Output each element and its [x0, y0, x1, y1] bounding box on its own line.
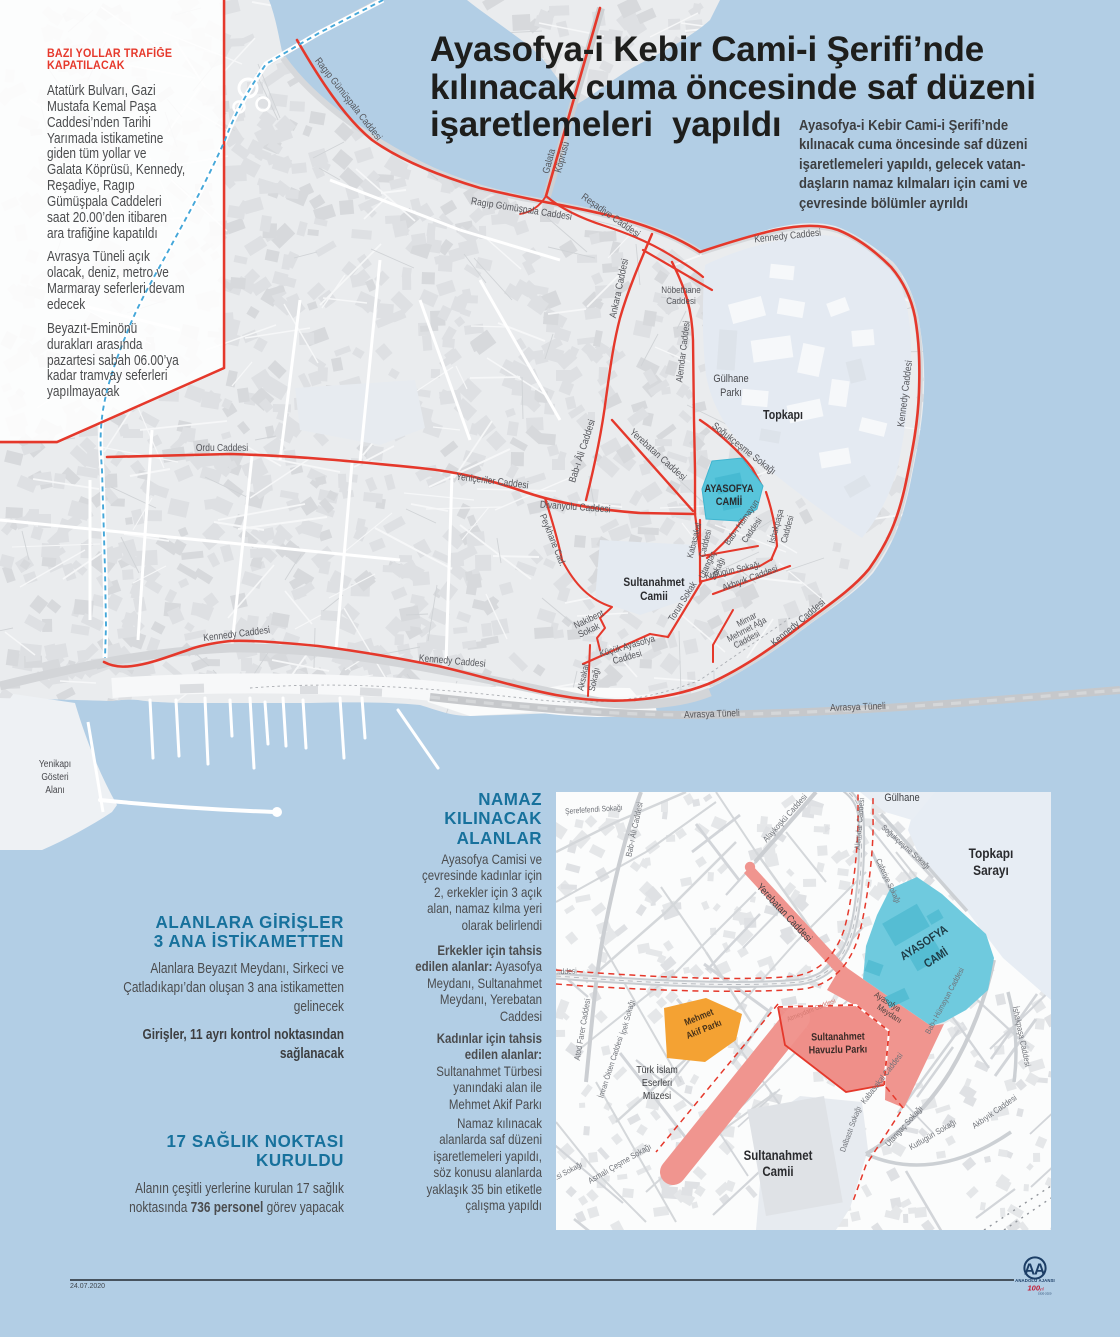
svg-text:Havuzlu Parkı: Havuzlu Parkı: [809, 1044, 868, 1057]
svg-text:Sultanahmet: Sultanahmet: [811, 1031, 865, 1044]
svg-text:Camii: Camii: [640, 590, 668, 603]
svg-text:Avrasya Tüneli: Avrasya Tüneli: [684, 707, 740, 720]
svg-text:AYASOFYA: AYASOFYA: [704, 483, 754, 495]
svg-text:Gülhane: Gülhane: [884, 792, 920, 804]
svg-text:CAMİİ: CAMİİ: [716, 494, 743, 508]
svg-text:Alanı: Alanı: [45, 784, 64, 795]
svg-text:Topkapı: Topkapı: [969, 845, 1014, 861]
svg-text:Müzesi: Müzesi: [643, 1090, 671, 1102]
svg-text:Eserleri: Eserleri: [642, 1077, 672, 1089]
svg-text:Avrasya Tüneli: Avrasya Tüneli: [830, 700, 886, 713]
svg-text:Caddesi: Caddesi: [666, 295, 696, 306]
svg-text:Gülhane: Gülhane: [713, 373, 749, 385]
svg-text:Sultanahmet: Sultanahmet: [744, 1148, 814, 1163]
svg-text:...ddesi: ...ddesi: [556, 966, 577, 977]
svg-text:Parkı: Parkı: [720, 387, 742, 399]
svg-text:Gösteri: Gösteri: [41, 771, 68, 782]
svg-text:Sarayı: Sarayı: [973, 862, 1009, 878]
svg-text:Türk İslam: Türk İslam: [636, 1064, 678, 1076]
svg-text:Sultanahmet: Sultanahmet: [623, 576, 684, 589]
svg-text:1920-2020: 1920-2020: [1038, 1292, 1052, 1296]
svg-text:Ordu Caddesi: Ordu Caddesi: [196, 442, 248, 453]
svg-text:ANADOLU AJANSI: ANADOLU AJANSI: [1015, 1278, 1055, 1283]
svg-text:Yenikapı: Yenikapı: [39, 758, 71, 769]
svg-text:Topkapı: Topkapı: [763, 408, 803, 422]
svg-text:AA: AA: [1024, 1262, 1045, 1279]
svg-text:Camii: Camii: [762, 1164, 793, 1179]
svg-text:Nöbethane: Nöbethane: [661, 284, 701, 295]
